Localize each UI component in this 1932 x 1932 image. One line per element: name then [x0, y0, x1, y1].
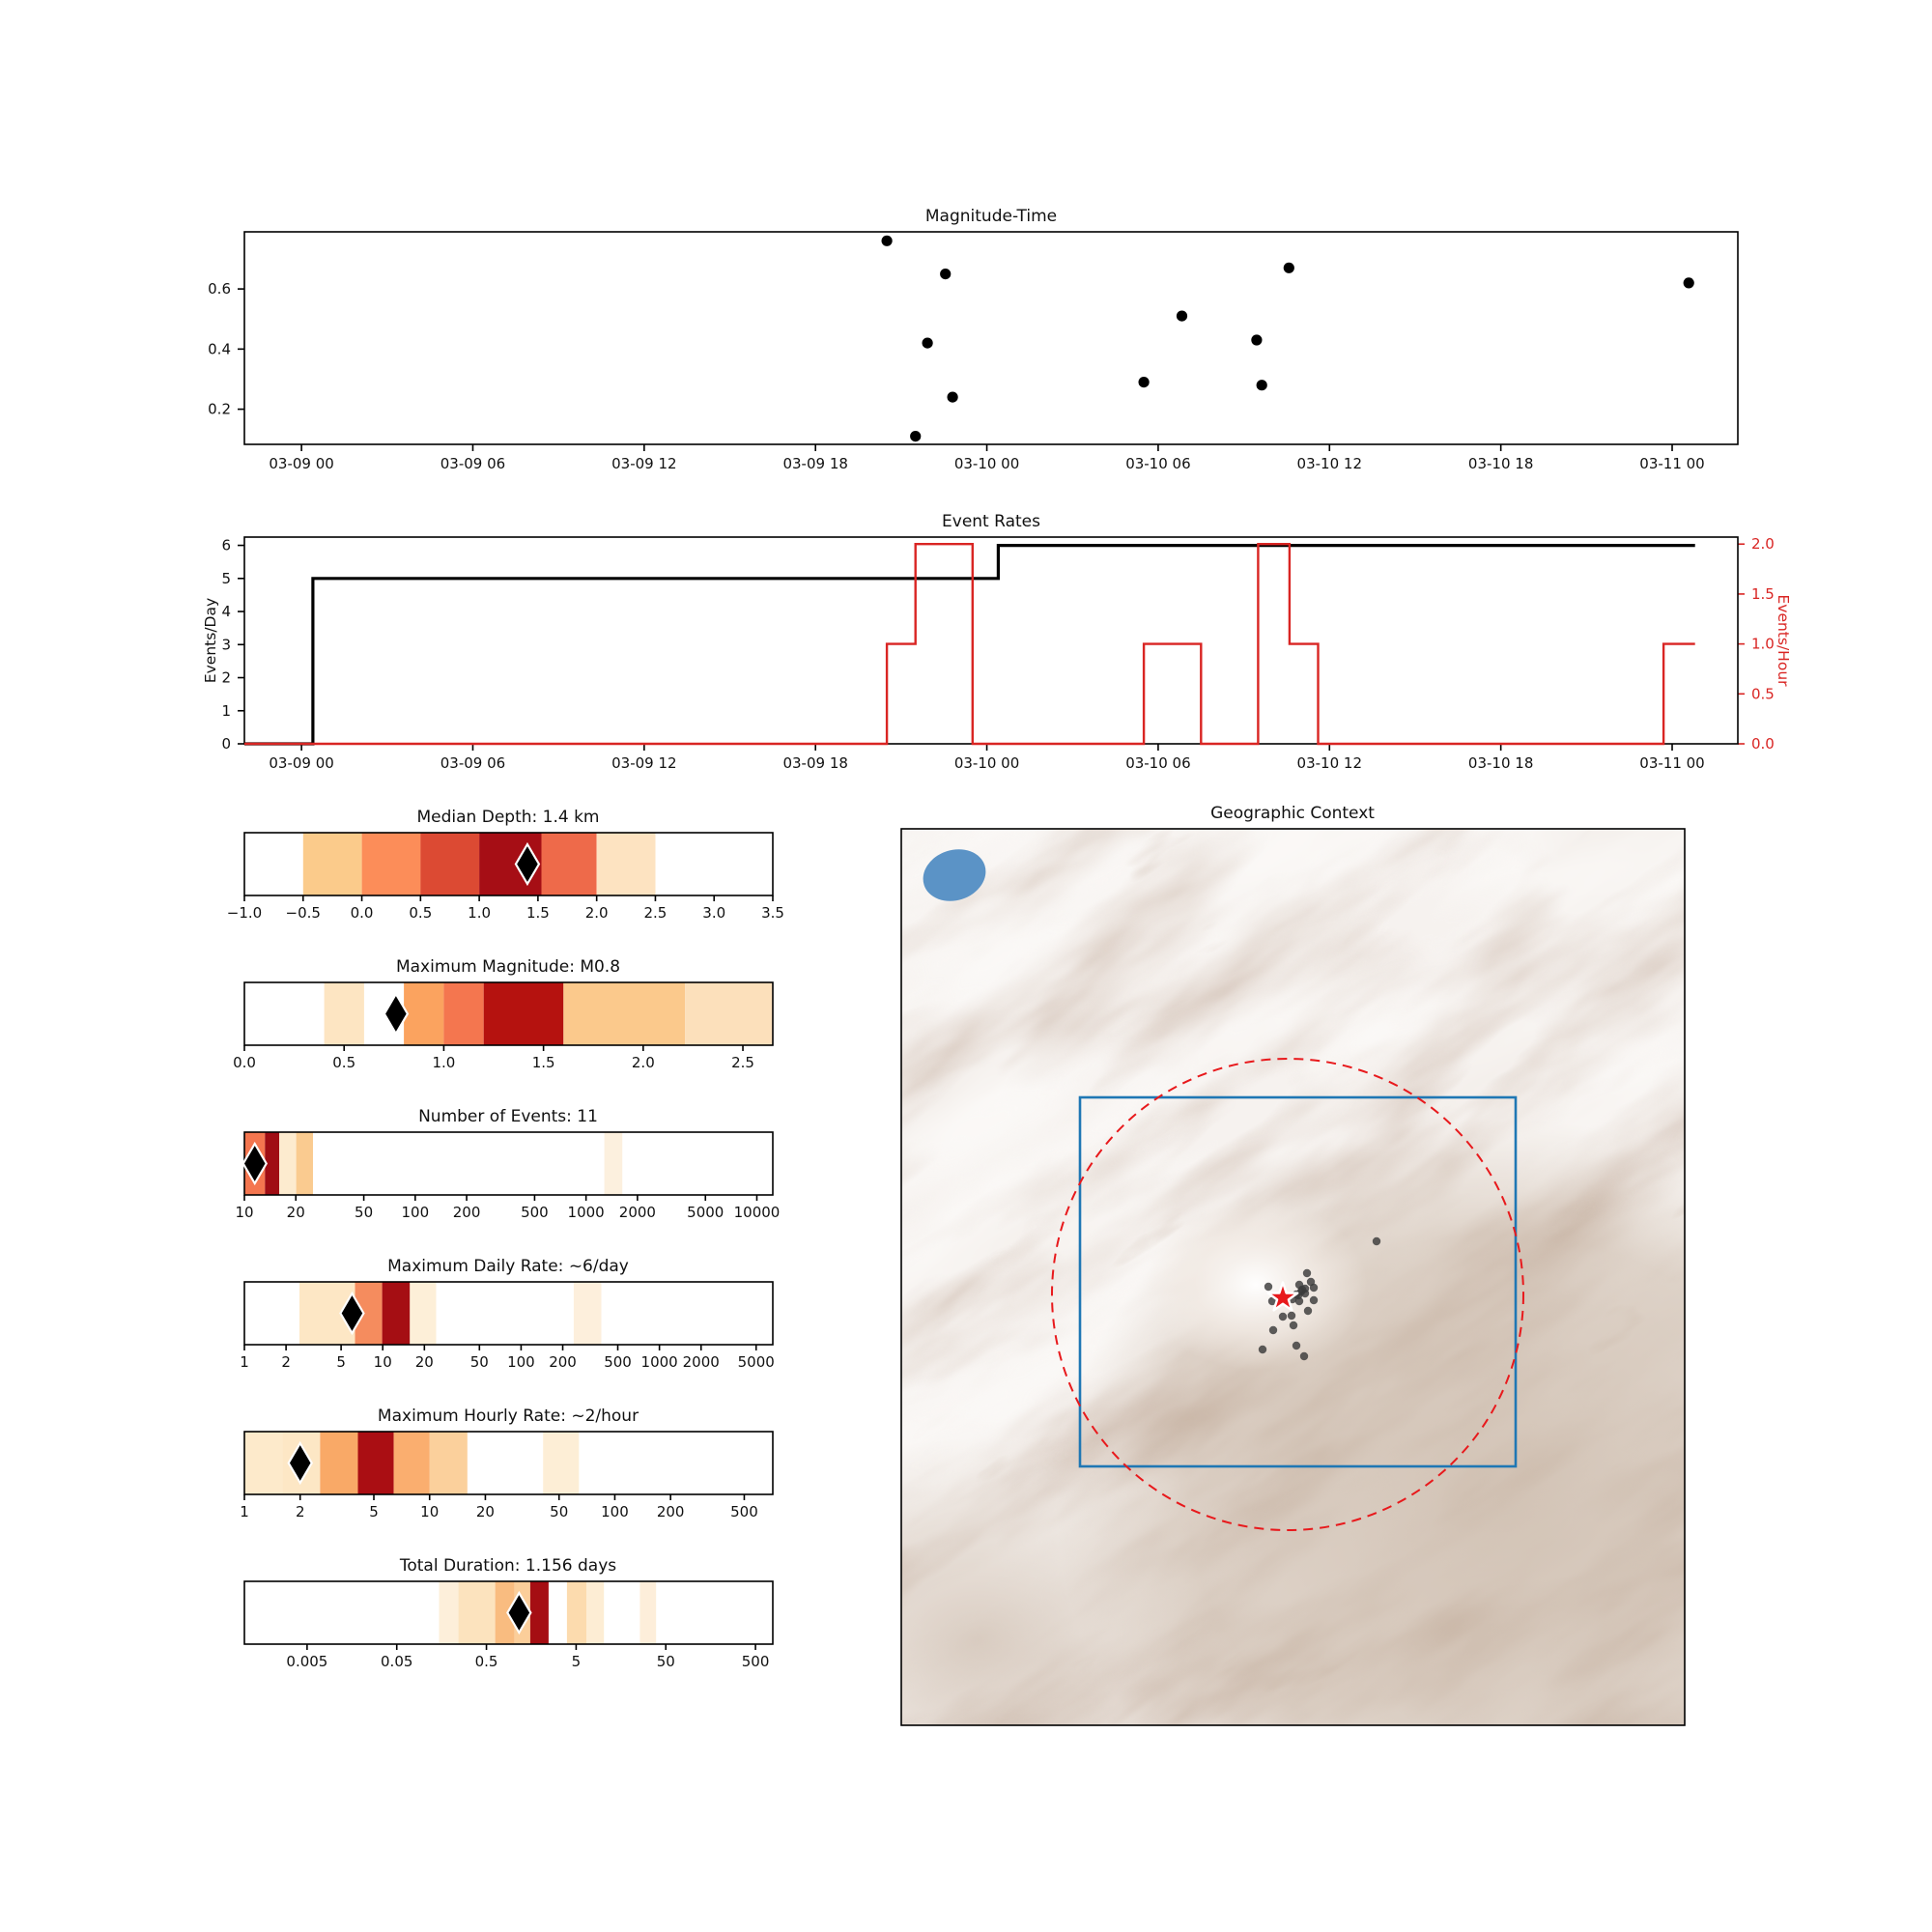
- map-event-dot: [1288, 1312, 1295, 1320]
- event-point: [940, 269, 951, 279]
- strip-tick-label: 100: [507, 1353, 535, 1371]
- x-tick-label: 03-09 06: [440, 754, 505, 772]
- strip-tick-label: 500: [604, 1353, 632, 1371]
- strip-tick-label: 500: [521, 1204, 549, 1221]
- heat-band: [443, 982, 483, 1045]
- strip-tick-label: 1: [240, 1503, 249, 1520]
- strip-maximum_magnitude: 0.00.51.01.52.02.5: [233, 982, 773, 1071]
- strip-tick-label: 2: [296, 1503, 305, 1520]
- strip-tick-label: 50: [657, 1653, 675, 1670]
- heat-band: [484, 982, 564, 1045]
- plot-border: [244, 537, 1738, 744]
- map-event-dot: [1269, 1326, 1277, 1334]
- x-tick-label: 03-09 00: [269, 455, 333, 472]
- x-tick-label: 03-11 00: [1639, 754, 1704, 772]
- strip-maximum_hourly_rate: 125102050100200500: [240, 1432, 773, 1520]
- x-tick-label: 03-09 18: [782, 455, 847, 472]
- heat-band: [530, 1581, 549, 1644]
- strip-tick-label: 5000: [687, 1204, 724, 1221]
- events-per-day-tick: 5: [221, 570, 231, 587]
- strip-tick-label: 100: [402, 1204, 430, 1221]
- x-tick-label: 03-09 06: [440, 455, 505, 472]
- y-axis-ticks: 0.20.40.6: [208, 280, 244, 417]
- map-event-dot: [1310, 1296, 1318, 1304]
- strip-ticks: 10205010020050010002000500010000: [235, 1195, 780, 1221]
- hourly-rate-line: [244, 544, 1695, 744]
- events-per-hour-tick: 2.0: [1751, 535, 1775, 553]
- map-event-dot: [1304, 1307, 1312, 1315]
- map-event-dot: [1259, 1346, 1266, 1353]
- strip-number_of_events: 10205010020050010002000500010000: [235, 1132, 780, 1221]
- event-point: [1684, 277, 1694, 288]
- heat-band: [410, 1282, 436, 1345]
- strip-tick-label: 0.005: [286, 1653, 327, 1670]
- heat-bands: [244, 1132, 622, 1195]
- figure-canvas: 03-09 0003-09 0603-09 1203-09 1803-10 00…: [0, 0, 1932, 1932]
- strip-tick-label: 10: [420, 1503, 439, 1520]
- map-event-dot: [1301, 1285, 1309, 1293]
- maximum-hourly-rate-title: Maximum Hourly Rate: ~2/hour: [378, 1406, 639, 1426]
- events-per-day-tick: 3: [221, 636, 231, 653]
- strip-tick-label: 3.5: [761, 904, 784, 922]
- right-axis-ticks: 0.00.51.01.52.0: [1738, 535, 1775, 753]
- magnitude-time-plot: 03-09 0003-09 0603-09 1203-09 1803-10 00…: [208, 232, 1738, 472]
- heat-band: [297, 1132, 313, 1195]
- strip-tick-label: 0.0: [233, 1054, 256, 1071]
- strip-tick-label: 50: [355, 1204, 373, 1221]
- number-of-events-title: Number of Events: 11: [418, 1107, 598, 1126]
- y-tick-label: 0.4: [208, 340, 231, 357]
- x-tick-label: 03-10 12: [1297, 455, 1362, 472]
- strip-tick-label: 3.0: [702, 904, 725, 922]
- map-event-dot: [1290, 1321, 1297, 1329]
- strip-ticks: 125102050100200500100020005000: [240, 1345, 775, 1371]
- strip-tick-label: 0.5: [475, 1653, 498, 1670]
- x-tick-label: 03-09 12: [611, 455, 676, 472]
- events-per-day-tick: 2: [221, 669, 231, 687]
- events-per-day-tick: 6: [221, 537, 231, 554]
- strip-tick-label: 200: [453, 1204, 481, 1221]
- strip-tick-label: 5000: [738, 1353, 775, 1371]
- strip-tick-label: 1: [240, 1353, 249, 1371]
- y-tick-label: 0.6: [208, 280, 231, 298]
- strip-tick-label: 20: [287, 1204, 305, 1221]
- heat-band: [362, 833, 421, 895]
- strip-tick-label: 2000: [683, 1353, 720, 1371]
- x-tick-label: 03-10 06: [1125, 455, 1190, 472]
- heat-band: [543, 1432, 579, 1494]
- heat-band: [279, 1132, 297, 1195]
- x-tick-label: 03-10 12: [1297, 754, 1362, 772]
- strip-maximum_daily_rate: 125102050100200500100020005000: [240, 1282, 775, 1371]
- event-point: [948, 392, 958, 403]
- strip-tick-label: 0.5: [332, 1054, 355, 1071]
- heat-band: [639, 1581, 656, 1644]
- heat-band: [404, 982, 443, 1045]
- strip-ticks: 125102050100200500: [240, 1494, 758, 1520]
- strip-tick-label: 10000: [734, 1204, 781, 1221]
- x-tick-label: 03-10 06: [1125, 754, 1190, 772]
- daily-rate-line: [244, 546, 1695, 744]
- strip-tick-label: 0.5: [409, 904, 432, 922]
- heat-band: [685, 982, 773, 1045]
- plot-border: [244, 1132, 773, 1195]
- plot-border: [244, 232, 1738, 444]
- x-tick-label: 03-10 00: [954, 455, 1019, 472]
- heat-bands: [440, 1581, 657, 1644]
- x-tick-label: 03-09 18: [782, 754, 847, 772]
- events-per-hour-tick: 0.5: [1751, 685, 1775, 702]
- strip-tick-label: 2000: [619, 1204, 656, 1221]
- heat-band: [303, 833, 362, 895]
- heat-band: [542, 833, 597, 895]
- x-tick-label: 03-09 12: [611, 754, 676, 772]
- strip-tick-label: 1.5: [532, 1054, 555, 1071]
- strip-ticks: −1.0−0.50.00.51.01.52.02.53.03.5: [227, 895, 784, 922]
- strip-tick-label: 200: [549, 1353, 577, 1371]
- strip-tick-label: 50: [470, 1353, 489, 1371]
- map-event-dot: [1293, 1342, 1300, 1350]
- events-per-hour-axis-label: Events/Hour: [1775, 594, 1792, 686]
- strip-tick-label: 10: [235, 1204, 253, 1221]
- strip-tick-label: −0.5: [286, 904, 321, 922]
- event-point: [1257, 380, 1267, 390]
- strip-tick-label: 10: [374, 1353, 392, 1371]
- events-per-day-axis-label: Events/Day: [202, 598, 219, 683]
- events-per-hour-tick: 1.0: [1751, 636, 1775, 653]
- event-point: [882, 236, 893, 246]
- strip-tick-label: 5: [336, 1353, 346, 1371]
- heat-band: [383, 1282, 411, 1345]
- x-tick-label: 03-09 00: [269, 754, 333, 772]
- map-event-dot: [1264, 1283, 1272, 1291]
- strip-tick-label: 2.0: [632, 1054, 655, 1071]
- strip-tick-label: 1000: [641, 1353, 678, 1371]
- map-event-dot: [1373, 1237, 1380, 1245]
- events-per-day-tick: 1: [221, 702, 231, 720]
- heat-band: [394, 1432, 430, 1494]
- event-point: [1284, 263, 1294, 273]
- heat-band: [320, 1432, 357, 1494]
- event-point: [1177, 311, 1187, 322]
- strip-tick-label: 5: [369, 1503, 379, 1520]
- events-per-day-tick: 0: [221, 735, 231, 753]
- x-tick-label: 03-11 00: [1639, 455, 1704, 472]
- heat-band: [244, 1432, 282, 1494]
- events-per-hour-tick: 1.5: [1751, 585, 1775, 603]
- strip-tick-label: 2.5: [731, 1054, 754, 1071]
- event-rates-plot: 03-09 0003-09 0603-09 1203-09 1803-10 00…: [221, 535, 1774, 772]
- heat-band: [597, 833, 656, 895]
- strip-tick-label: 1.0: [432, 1054, 455, 1071]
- x-tick-label: 03-10 00: [954, 754, 1019, 772]
- event-rates-title: Event Rates: [942, 512, 1040, 531]
- event-point: [1251, 334, 1262, 345]
- maximum-magnitude-title: Maximum Magnitude: M0.8: [396, 957, 620, 977]
- heat-band: [430, 1432, 468, 1494]
- strip-tick-label: 100: [601, 1503, 629, 1520]
- strip-tick-label: 1.0: [468, 904, 491, 922]
- events-per-hour-tick: 0.0: [1751, 735, 1775, 753]
- map-event-dot: [1279, 1313, 1287, 1321]
- heat-band: [358, 1432, 394, 1494]
- strip-tick-label: −1.0: [227, 904, 262, 922]
- heat-band: [605, 1132, 623, 1195]
- strip-total_duration: 0.0050.050.5550500: [244, 1581, 773, 1670]
- scatter-points: [882, 236, 1694, 442]
- heat-band: [459, 1581, 496, 1644]
- median-depth-title: Median Depth: 1.4 km: [417, 808, 600, 827]
- total-duration-title: Total Duration: 1.156 days: [400, 1556, 616, 1576]
- strip-tick-label: 20: [476, 1503, 495, 1520]
- map-event-dot: [1300, 1352, 1308, 1360]
- map-event-dot: [1310, 1284, 1318, 1292]
- heat-band: [574, 1282, 602, 1345]
- events-per-day-tick: 4: [221, 603, 231, 620]
- strip-tick-label: 500: [730, 1503, 758, 1520]
- magnitude-time-title: Magnitude-Time: [925, 207, 1057, 226]
- y-tick-label: 0.2: [208, 401, 231, 418]
- strip-tick-label: 1000: [568, 1204, 605, 1221]
- x-axis-ticks: 03-09 0003-09 0603-09 1203-09 1803-10 00…: [269, 744, 1704, 772]
- strip-median_depth: −1.0−0.50.00.51.01.52.02.53.03.5: [227, 833, 784, 922]
- strip-tick-label: 0.0: [351, 904, 374, 922]
- strip-tick-label: 0.05: [381, 1653, 412, 1670]
- strip-tick-label: 5: [572, 1653, 582, 1670]
- summit-snow-glow: [1145, 1200, 1367, 1370]
- heat-bands: [303, 833, 656, 895]
- map-event-dot: [1303, 1269, 1311, 1277]
- event-point: [910, 431, 921, 441]
- event-point: [1139, 377, 1150, 387]
- heat-band: [420, 833, 479, 895]
- x-tick-label: 03-10 18: [1468, 754, 1533, 772]
- strip-tick-label: 500: [742, 1653, 770, 1670]
- heat-band: [567, 1581, 586, 1644]
- maximum-daily-rate-title: Maximum Daily Rate: ~6/day: [387, 1257, 629, 1276]
- geographic-context-title: Geographic Context: [1210, 804, 1375, 823]
- left-axis-ticks: 0123456: [221, 537, 244, 753]
- strip-tick-label: 50: [550, 1503, 568, 1520]
- event-point: [923, 338, 933, 349]
- strip-tick-label: 2.0: [585, 904, 609, 922]
- charts-svg: 03-09 0003-09 0603-09 1203-09 1803-10 00…: [0, 0, 1932, 1932]
- heat-band: [563, 982, 685, 1045]
- strip-tick-label: 200: [657, 1503, 685, 1520]
- strip-tick-label: 2.5: [644, 904, 668, 922]
- strip-tick-label: 1.5: [526, 904, 550, 922]
- strip-ticks: 0.00.51.01.52.02.5: [233, 1045, 754, 1071]
- x-tick-label: 03-10 18: [1468, 455, 1533, 472]
- strip-tick-label: 2: [281, 1353, 291, 1371]
- strip-tick-label: 20: [415, 1353, 434, 1371]
- heat-band: [440, 1581, 459, 1644]
- heat-band: [586, 1581, 604, 1644]
- strip-ticks: 0.0050.050.5550500: [286, 1644, 769, 1670]
- heat-band: [325, 982, 364, 1045]
- x-axis-ticks: 03-09 0003-09 0603-09 1203-09 1803-10 00…: [269, 444, 1704, 472]
